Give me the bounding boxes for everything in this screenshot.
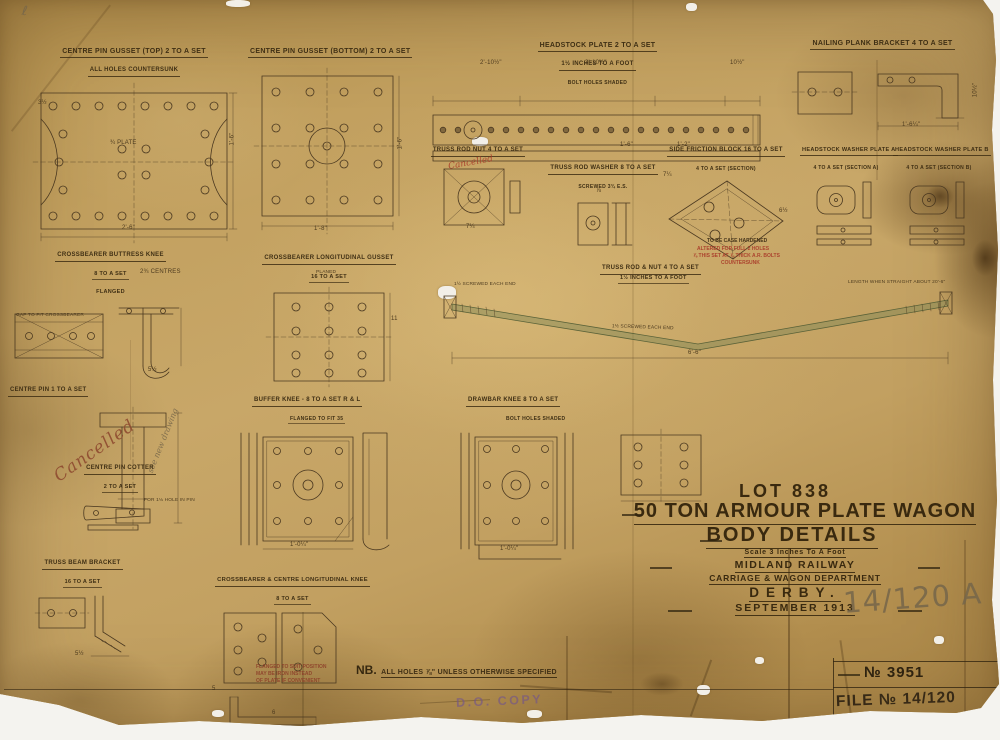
drawing-title: CROSSBEARER LONGITUDINAL GUSSET xyxy=(262,255,395,265)
dimension-label: 5 xyxy=(212,686,216,692)
drawing-title: CENTRE PIN 1 TO A SET xyxy=(8,387,88,397)
lot-number: LOT 838 xyxy=(615,481,955,502)
friction-block-note: TO BE CASE HARDENED xyxy=(707,238,767,244)
dimension-label: 2'-6" xyxy=(122,225,135,231)
sketch-headstock-washer-plate-b xyxy=(906,176,972,248)
sketch-crossbearer-longitudinal-gusset xyxy=(262,285,397,389)
drawing-truss-rod-nut: TRUSS ROD NUT 4 TO A SET 7¼ xyxy=(428,138,528,231)
dimension-label: 6 xyxy=(272,710,276,716)
corner-pencil-mark: ℓ xyxy=(21,4,28,20)
rod-label: 1½ SCREWED EACH END xyxy=(454,282,516,287)
sketch-nailing-plank-bracket xyxy=(790,56,975,134)
sketch-truss-rod-nut xyxy=(432,159,524,231)
drawing-title: CENTRE PIN COTTER xyxy=(84,465,156,475)
dimension-label: 3'-10½" xyxy=(585,60,607,66)
scale-note: Scale 3 Inches To A Foot xyxy=(640,549,950,558)
drawing-subtitle: 4 TO A SET (SECTION B) xyxy=(904,165,973,173)
sketch-headstock-washer-plate-a xyxy=(813,176,879,248)
dimension-label: 2¾ CENTRES xyxy=(140,269,181,275)
stampbox-vline xyxy=(833,658,834,720)
drawing-crossbearer-buttress-knee: CROSSBEARER BUTTRESS KNEE 8 TO A SET FLA… xyxy=(8,243,213,396)
note-prefix: NB. xyxy=(356,663,377,677)
drawing-subtitle: ALL HOLES COUNTERSUNK xyxy=(88,67,181,77)
dimension-label: 11 xyxy=(391,316,398,322)
drawing-title: DRAWBAR KNEE 8 TO A SET xyxy=(466,397,560,407)
sketch-buffer-knee xyxy=(235,427,410,557)
drawing-qty: 16 TO A SET xyxy=(63,579,103,588)
dimension-label: 6'-6" xyxy=(688,350,701,356)
drawing-qty: 2 TO A SET xyxy=(102,484,138,493)
crease-line xyxy=(690,660,712,717)
paper-chip xyxy=(226,0,250,7)
dimension-label: 5½ xyxy=(75,651,84,657)
paper-chip xyxy=(686,3,697,11)
drawing-subtitle: BODY DETAILS xyxy=(612,524,972,549)
scanned-engineering-drawing: { "sheet": { "corner_mark": "ℓ", "note_p… xyxy=(0,0,1000,740)
dimension-label: 5½ xyxy=(148,367,157,373)
dimension-label: 1'-0¼" xyxy=(500,546,518,552)
drawing-truss-beam-bracket: TRUSS BEAM BRACKET 16 TO A SET 5½ xyxy=(25,551,140,666)
drawing-title: CROSSBEARER & CENTRE LONGITUDINAL KNEE xyxy=(215,577,370,587)
railway-name: MIDLAND RAILWAY xyxy=(640,559,950,573)
crease-line xyxy=(964,540,966,728)
drawing-subtitle: SCREWED 3¾ E.S. xyxy=(576,184,629,192)
dimension-label: 2'-10½" xyxy=(480,60,502,66)
drawing-title: TRUSS ROD NUT 4 TO A SET xyxy=(431,147,525,157)
dimension-label: 1'-8" xyxy=(314,226,327,232)
drawing-title: BUFFER KNEE - 8 TO A SET R & L xyxy=(252,397,362,407)
sketch-centre-pin-gusset-top xyxy=(29,79,239,247)
dimension-label: 1'-6" xyxy=(397,137,403,150)
red-note-line: ALTERED FOR FULL 2 HOLES xyxy=(697,246,769,252)
drawing-title: HEADSTOCK WASHER PLATE B xyxy=(893,147,991,156)
dimension-label: 10½" xyxy=(730,60,745,66)
cotter-label: FOR 1⅛ HOLE IN PIN xyxy=(144,498,195,503)
file-number: FILE № 14/120 xyxy=(836,689,956,711)
drawing-title: CENTRE PIN GUSSET (BOTTOM) 2 TO A SET xyxy=(248,47,412,58)
crease-line xyxy=(566,636,568,730)
drawing-subtitle: 4 TO A SET (SECTION) xyxy=(694,166,758,174)
drawing-title: HEADSTOCK PLATE 2 TO A SET xyxy=(538,41,658,52)
sketch-centre-pin-gusset-bottom xyxy=(250,66,405,238)
sketch-truss-rod-washer xyxy=(570,195,636,251)
dimension-label: PLANED xyxy=(316,270,336,275)
drawing-qty: 8 TO A SET xyxy=(274,596,310,605)
drawing-crossbearer-longitudinal-gusset: CROSSBEARER LONGITUDINAL GUSSET 16 TO A … xyxy=(258,246,400,389)
drawing-note: FLANGED xyxy=(94,289,127,297)
drawing-centre-pin-gusset-top: CENTRE PIN GUSSET (TOP) 2 TO A SET ALL H… xyxy=(28,40,240,247)
dimension-label: 6½ xyxy=(779,208,788,214)
note-text: ALL HOLES ⅞" UNLESS OTHERWISE SPECIFIED xyxy=(381,669,557,678)
drawing-shading-note: BOLT HOLES SHADED xyxy=(566,80,629,88)
do-copy-stamp: D.O. COPY xyxy=(456,692,544,710)
drawing-main-title: 50 TON ARMOUR PLATE WAGON xyxy=(612,500,998,525)
drawing-title: NAILING PLANK BRACKET 4 TO A SET xyxy=(810,39,954,50)
paper-chip xyxy=(697,685,710,695)
drawing-headstock-washer-plate-b: HEADSTOCK WASHER PLATE B 4 TO A SET (SEC… xyxy=(893,138,985,248)
drawing-title: TRUSS BEAM BRACKET xyxy=(42,560,122,570)
dimension-label: GAP TO FIT CROSSBEARER xyxy=(16,313,84,318)
dimension-label: 1'-0¼" xyxy=(290,542,308,548)
drawing-crossbearer-centre-longitudinal-knee: CROSSBEARER & CENTRE LONGITUDINAL KNEE 8… xyxy=(210,568,375,735)
dimension-label: 1'-6" xyxy=(229,133,235,146)
drawing-scale-note: 1½ INCHES TO A FOOT xyxy=(618,275,689,284)
drawing-side-friction-block: SIDE FRICTION BLOCK 16 TO A SET 4 TO A S… xyxy=(655,138,797,263)
stampbox-midline xyxy=(833,687,1000,688)
rod-label: LENGTH WHEN STRAIGHT ABOUT 20'-6" xyxy=(848,280,945,285)
drawing-centre-pin-cotter: CENTRE PIN COTTER 2 TO A SET FOR 1⅛ HOLE… xyxy=(60,456,180,533)
drawing-qty: 16 TO A SET xyxy=(309,274,349,283)
drawing-nailing-plank-bracket: NAILING PLANK BRACKET 4 TO A SET 1'-6¼" … xyxy=(790,32,975,134)
stampbox-topline xyxy=(833,661,1000,662)
dimension-label: 10½" xyxy=(972,83,978,98)
knee-note-line: OF PLATE IF CONVENIENT xyxy=(256,678,320,684)
dimension-label: ⅞ xyxy=(596,188,601,194)
drawing-title: TRUSS ROD WASHER 8 TO A SET xyxy=(548,165,657,175)
drawing-title: SIDE FRICTION BLOCK 16 TO A SET xyxy=(667,147,784,157)
drawing-note: FLANGED TO FIT 35 xyxy=(288,416,345,425)
sheet-border-line xyxy=(4,689,833,690)
drawing-centre-pin-gusset-bottom: CENTRE PIN GUSSET (BOTTOM) 2 TO A SET 1'… xyxy=(248,40,406,238)
drawing-title: HEADSTOCK WASHER PLATE A xyxy=(800,147,898,156)
knee-note-line: MAY BE IRON INSTEAD xyxy=(256,671,312,677)
general-note: NB. ALL HOLES ⅞" UNLESS OTHERWISE SPECIF… xyxy=(356,661,557,679)
drawing-subtitle: 4 TO A SET (SECTION A) xyxy=(811,165,880,173)
drawing-truss-rod-assembly: TRUSS ROD & NUT 4 TO A SET 1½ INCHES TO … xyxy=(440,256,960,366)
drawing-note: BOLT HOLES SHADED xyxy=(504,416,567,424)
drawing-truss-rod-washer: TRUSS ROD WASHER 8 TO A SET SCREWED 3¾ E… xyxy=(538,156,668,251)
drawing-title: CROSSBEARER BUTTRESS KNEE xyxy=(55,252,166,262)
dimension-label: 1'-6¼" xyxy=(902,122,920,128)
knee-note-line: FLANGED TO SUIT POSITION xyxy=(256,664,326,670)
rule-dash xyxy=(838,674,860,676)
paper-chip xyxy=(755,657,764,664)
drawing-number: № 3951 xyxy=(864,664,924,681)
dimension-label: 7¼ xyxy=(663,172,672,178)
drawing-qty: 8 TO A SET xyxy=(92,271,128,280)
paper-chip xyxy=(934,636,944,644)
stain-spot xyxy=(640,672,684,696)
paper-chip xyxy=(527,710,542,718)
dimension-label: 3½ xyxy=(38,100,47,106)
drawing-title: CENTRE PIN GUSSET (TOP) 2 TO A SET xyxy=(60,47,208,58)
dimension-label: 1'-6" xyxy=(620,142,633,148)
dimension-label: 7¼ xyxy=(466,224,475,230)
aged-paper-sheet: ℓ CENTRE PIN GUSSET (TOP) 2 TO A SET ALL… xyxy=(0,0,1000,732)
drawing-headstock-washer-plate-a: HEADSTOCK WASHER PLATE A 4 TO A SET (SEC… xyxy=(800,138,892,248)
drawing-buffer-knee: BUFFER KNEE - 8 TO A SET R & L FLANGED T… xyxy=(232,388,412,557)
dimension-label: ¾ PLATE xyxy=(110,140,137,146)
